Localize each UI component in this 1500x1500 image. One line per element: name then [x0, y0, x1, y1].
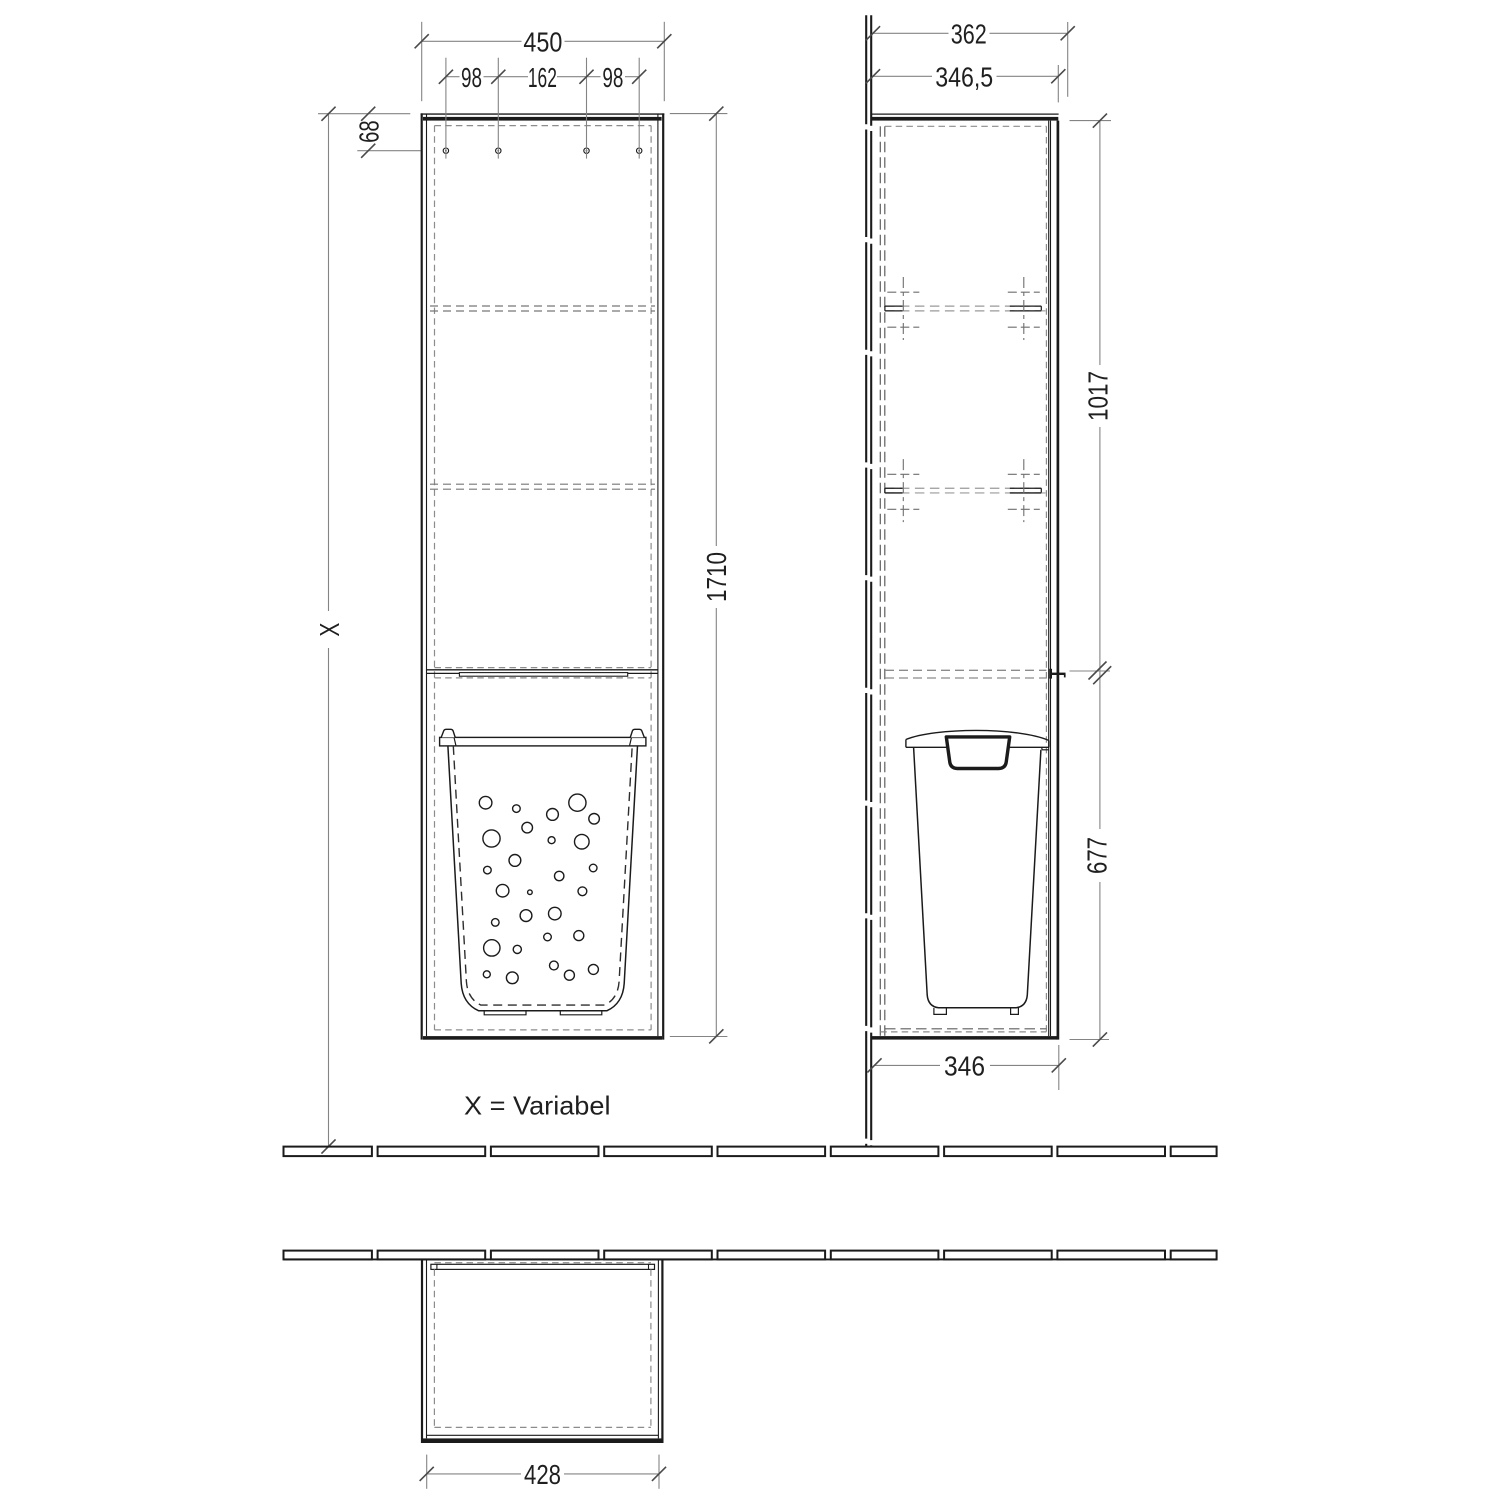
svg-text:1710: 1710 — [701, 552, 732, 602]
svg-text:677: 677 — [1082, 837, 1113, 874]
svg-text:1017: 1017 — [1083, 371, 1114, 421]
svg-text:162: 162 — [528, 62, 557, 93]
svg-text:X: X — [314, 622, 345, 636]
svg-text:450: 450 — [523, 26, 562, 57]
svg-text:68: 68 — [353, 120, 384, 143]
svg-text:98: 98 — [602, 62, 623, 93]
svg-text:346: 346 — [944, 1051, 985, 1082]
svg-text:X = Variabel: X = Variabel — [464, 1090, 611, 1120]
svg-text:428: 428 — [524, 1459, 561, 1490]
svg-text:362: 362 — [951, 19, 987, 50]
svg-text:346,5: 346,5 — [935, 61, 993, 92]
svg-text:98: 98 — [461, 62, 482, 93]
